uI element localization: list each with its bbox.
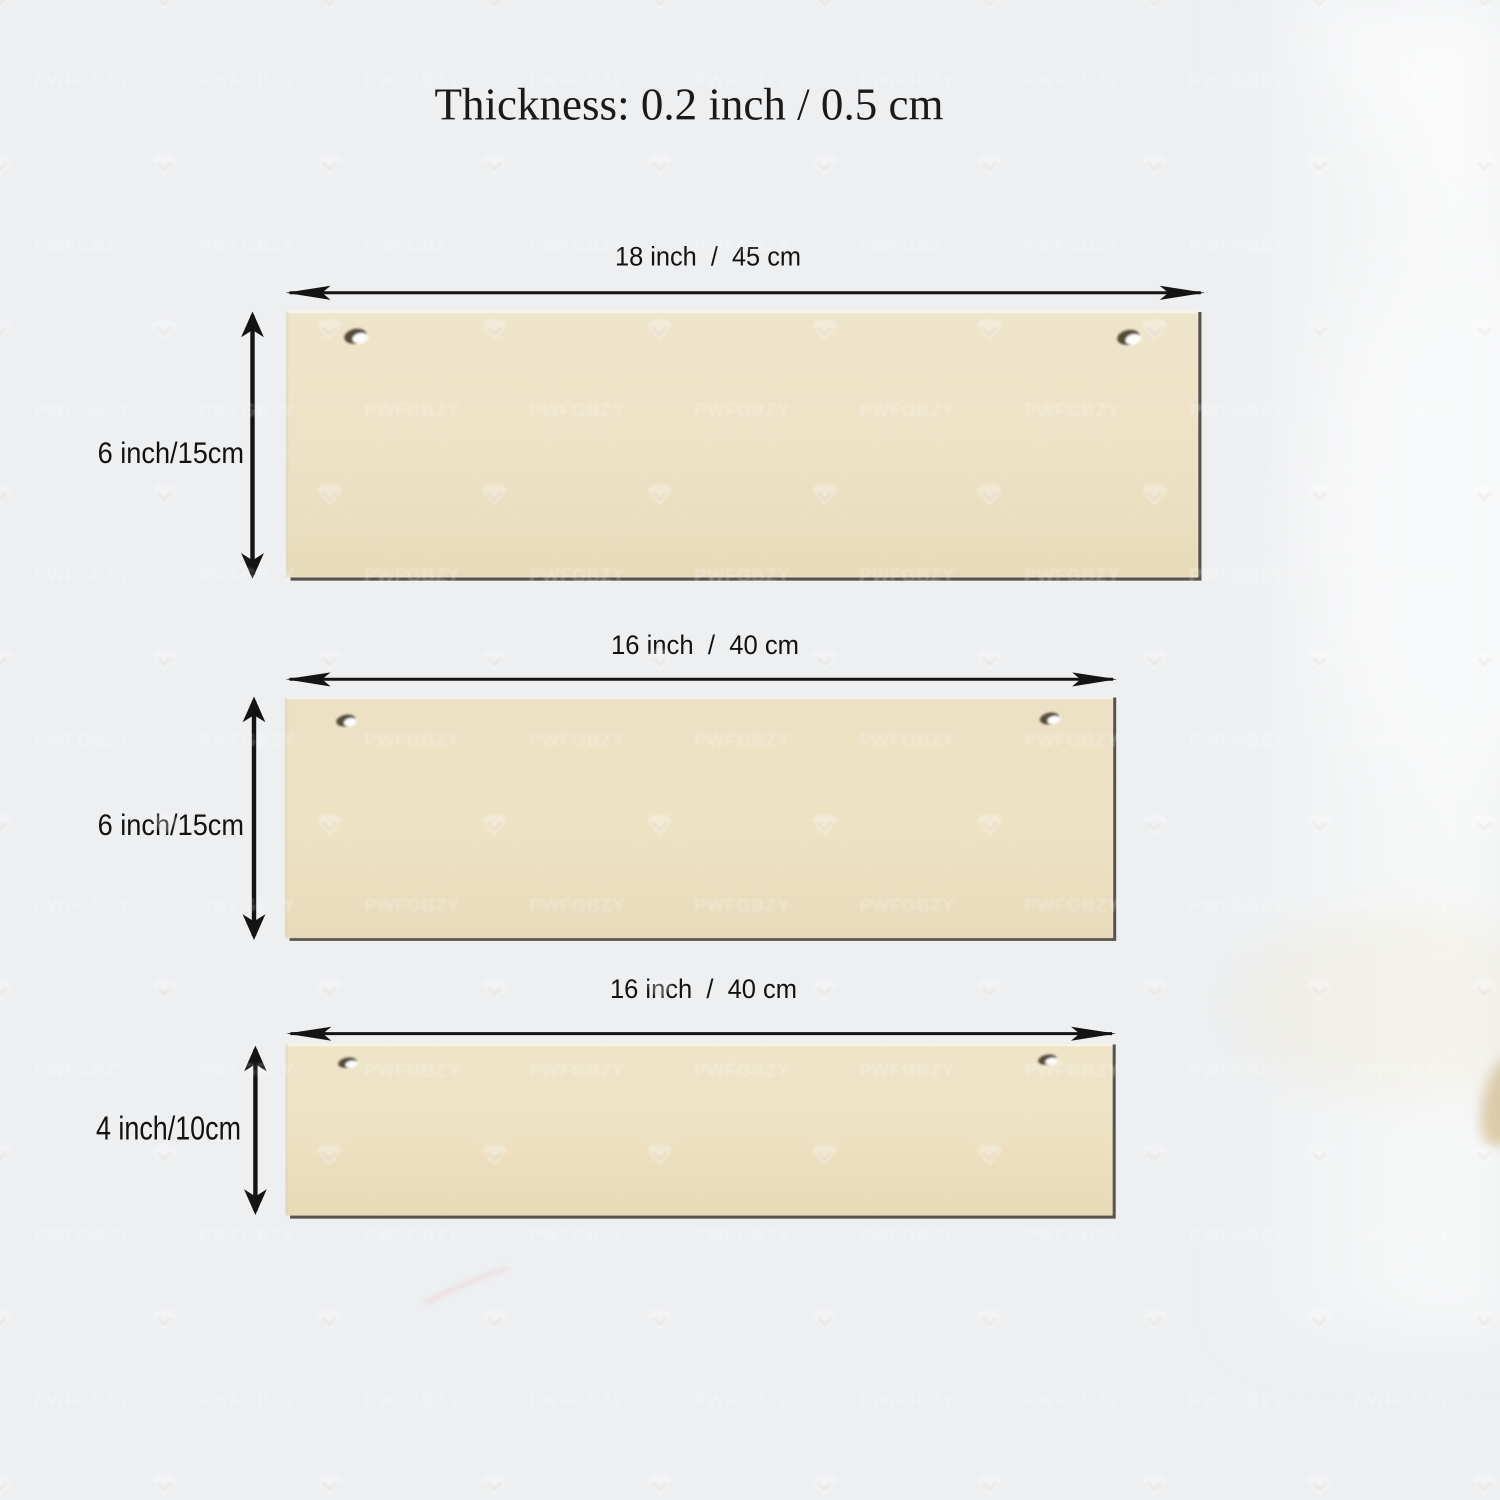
svg-text:PWFGBZY: PWFGBZY bbox=[1189, 1390, 1285, 1411]
svg-text:6 inch/15cm: 6 inch/15cm bbox=[98, 437, 244, 470]
svg-text:PWFGBZY: PWFGBZY bbox=[34, 1225, 130, 1246]
svg-text:PWFGBZY: PWFGBZY bbox=[1189, 1060, 1285, 1081]
svg-text:PWFGBZY: PWFGBZY bbox=[199, 565, 295, 586]
svg-text:PWFGBZY: PWFGBZY bbox=[199, 1060, 295, 1081]
svg-text:PWFGBZY: PWFGBZY bbox=[1189, 400, 1285, 421]
svg-text:PWFGBZY: PWFGBZY bbox=[859, 730, 955, 751]
svg-text:PWFGBZY: PWFGBZY bbox=[529, 895, 625, 916]
svg-text:4 inch/10cm: 4 inch/10cm bbox=[96, 1110, 241, 1147]
svg-text:PWFGBZY: PWFGBZY bbox=[694, 1390, 790, 1411]
svg-text:PWFGBZY: PWFGBZY bbox=[199, 895, 295, 916]
svg-text:PWFGBZY: PWFGBZY bbox=[199, 730, 295, 751]
svg-text:PWFGBZY: PWFGBZY bbox=[364, 1225, 460, 1246]
svg-text:PWFGBZY: PWFGBZY bbox=[199, 70, 295, 91]
svg-text:PWFGBZY: PWFGBZY bbox=[199, 1390, 295, 1411]
svg-text:16 inch / 40 cm: 16 inch / 40 cm bbox=[611, 630, 799, 660]
svg-text:16 inch / 40 cm: 16 inch / 40 cm bbox=[610, 974, 797, 1004]
svg-text:PWFGBZY: PWFGBZY bbox=[859, 1225, 955, 1246]
svg-text:PWFGBZY: PWFGBZY bbox=[694, 730, 790, 751]
svg-text:PWFGBZY: PWFGBZY bbox=[1024, 565, 1120, 586]
svg-text:PWFGBZY: PWFGBZY bbox=[364, 565, 460, 586]
svg-text:PWFGBZY: PWFGBZY bbox=[1354, 235, 1450, 256]
svg-text:PWFGBZY: PWFGBZY bbox=[694, 70, 790, 91]
svg-text:PWFGBZY: PWFGBZY bbox=[34, 400, 130, 421]
svg-text:PWFGBZY: PWFGBZY bbox=[199, 235, 295, 256]
svg-text:PWFGBZY: PWFGBZY bbox=[1189, 895, 1285, 916]
svg-text:PWFGBZY: PWFGBZY bbox=[364, 1390, 460, 1411]
svg-text:PWFGBZY: PWFGBZY bbox=[364, 235, 460, 256]
svg-text:PWFGBZY: PWFGBZY bbox=[859, 895, 955, 916]
svg-text:PWFGBZY: PWFGBZY bbox=[529, 1390, 625, 1411]
svg-text:PWFGBZY: PWFGBZY bbox=[1189, 1225, 1285, 1246]
svg-text:PWFGBZY: PWFGBZY bbox=[859, 565, 955, 586]
svg-text:PWFGBZY: PWFGBZY bbox=[364, 1060, 460, 1081]
svg-text:PWFGBZY: PWFGBZY bbox=[1354, 1060, 1450, 1081]
svg-text:PWFGBZY: PWFGBZY bbox=[1189, 235, 1285, 256]
svg-text:PWFGBZY: PWFGBZY bbox=[859, 1390, 955, 1411]
svg-text:PWFGBZY: PWFGBZY bbox=[529, 1225, 625, 1246]
svg-text:PWFGBZY: PWFGBZY bbox=[1024, 1225, 1120, 1246]
svg-text:PWFGBZY: PWFGBZY bbox=[34, 565, 130, 586]
svg-text:PWFGBZY: PWFGBZY bbox=[364, 895, 460, 916]
svg-text:PWFGBZY: PWFGBZY bbox=[859, 1060, 955, 1081]
svg-text:PWFGBZY: PWFGBZY bbox=[1189, 70, 1285, 91]
svg-text:PWFGBZY: PWFGBZY bbox=[859, 235, 955, 256]
svg-text:PWFGBZY: PWFGBZY bbox=[34, 730, 130, 751]
svg-text:PWFGBZY: PWFGBZY bbox=[1354, 895, 1450, 916]
svg-text:PWFGBZY: PWFGBZY bbox=[529, 235, 625, 256]
svg-text:PWFGBZY: PWFGBZY bbox=[529, 730, 625, 751]
svg-text:PWFGBZY: PWFGBZY bbox=[1354, 70, 1450, 91]
svg-text:PWFGBZY: PWFGBZY bbox=[694, 235, 790, 256]
svg-text:PWFGBZY: PWFGBZY bbox=[1024, 730, 1120, 751]
svg-text:PWFGBZY: PWFGBZY bbox=[694, 1060, 790, 1081]
svg-text:PWFGBZY: PWFGBZY bbox=[529, 565, 625, 586]
svg-text:PWFGBZY: PWFGBZY bbox=[1354, 1390, 1450, 1411]
svg-text:PWFGBZY: PWFGBZY bbox=[694, 565, 790, 586]
svg-text:PWFGBZY: PWFGBZY bbox=[1354, 400, 1450, 421]
svg-text:PWFGBZY: PWFGBZY bbox=[1354, 730, 1450, 751]
svg-text:PWFGBZY: PWFGBZY bbox=[1354, 565, 1450, 586]
svg-text:PWFGBZY: PWFGBZY bbox=[1189, 565, 1285, 586]
svg-text:PWFGBZY: PWFGBZY bbox=[1024, 70, 1120, 91]
svg-text:PWFGBZY: PWFGBZY bbox=[199, 1225, 295, 1246]
svg-text:PWFGBZY: PWFGBZY bbox=[859, 70, 955, 91]
svg-text:PWFGBZY: PWFGBZY bbox=[529, 70, 625, 91]
svg-text:PWFGBZY: PWFGBZY bbox=[1189, 730, 1285, 751]
svg-text:PWFGBZY: PWFGBZY bbox=[34, 235, 130, 256]
svg-text:PWFGBZY: PWFGBZY bbox=[34, 70, 130, 91]
svg-text:PWFGBZY: PWFGBZY bbox=[34, 1060, 130, 1081]
svg-text:PWFGBZY: PWFGBZY bbox=[694, 400, 790, 421]
svg-text:PWFGBZY: PWFGBZY bbox=[364, 730, 460, 751]
svg-text:PWFGBZY: PWFGBZY bbox=[529, 400, 625, 421]
svg-text:PWFGBZY: PWFGBZY bbox=[694, 895, 790, 916]
svg-text:PWFGBZY: PWFGBZY bbox=[1024, 895, 1120, 916]
svg-text:PWFGBZY: PWFGBZY bbox=[1024, 235, 1120, 256]
svg-text:PWFGBZY: PWFGBZY bbox=[859, 400, 955, 421]
svg-text:PWFGBZY: PWFGBZY bbox=[199, 400, 295, 421]
svg-text:PWFGBZY: PWFGBZY bbox=[364, 70, 460, 91]
svg-text:PWFGBZY: PWFGBZY bbox=[694, 1225, 790, 1246]
svg-text:PWFGBZY: PWFGBZY bbox=[1024, 1060, 1120, 1081]
svg-text:PWFGBZY: PWFGBZY bbox=[529, 1060, 625, 1081]
svg-text:PWFGBZY: PWFGBZY bbox=[34, 895, 130, 916]
svg-text:PWFGBZY: PWFGBZY bbox=[1024, 1390, 1120, 1411]
svg-text:PWFGBZY: PWFGBZY bbox=[34, 1390, 130, 1411]
svg-text:PWFGBZY: PWFGBZY bbox=[1354, 1225, 1450, 1246]
svg-text:PWFGBZY: PWFGBZY bbox=[364, 400, 460, 421]
svg-text:PWFGBZY: PWFGBZY bbox=[1024, 400, 1120, 421]
